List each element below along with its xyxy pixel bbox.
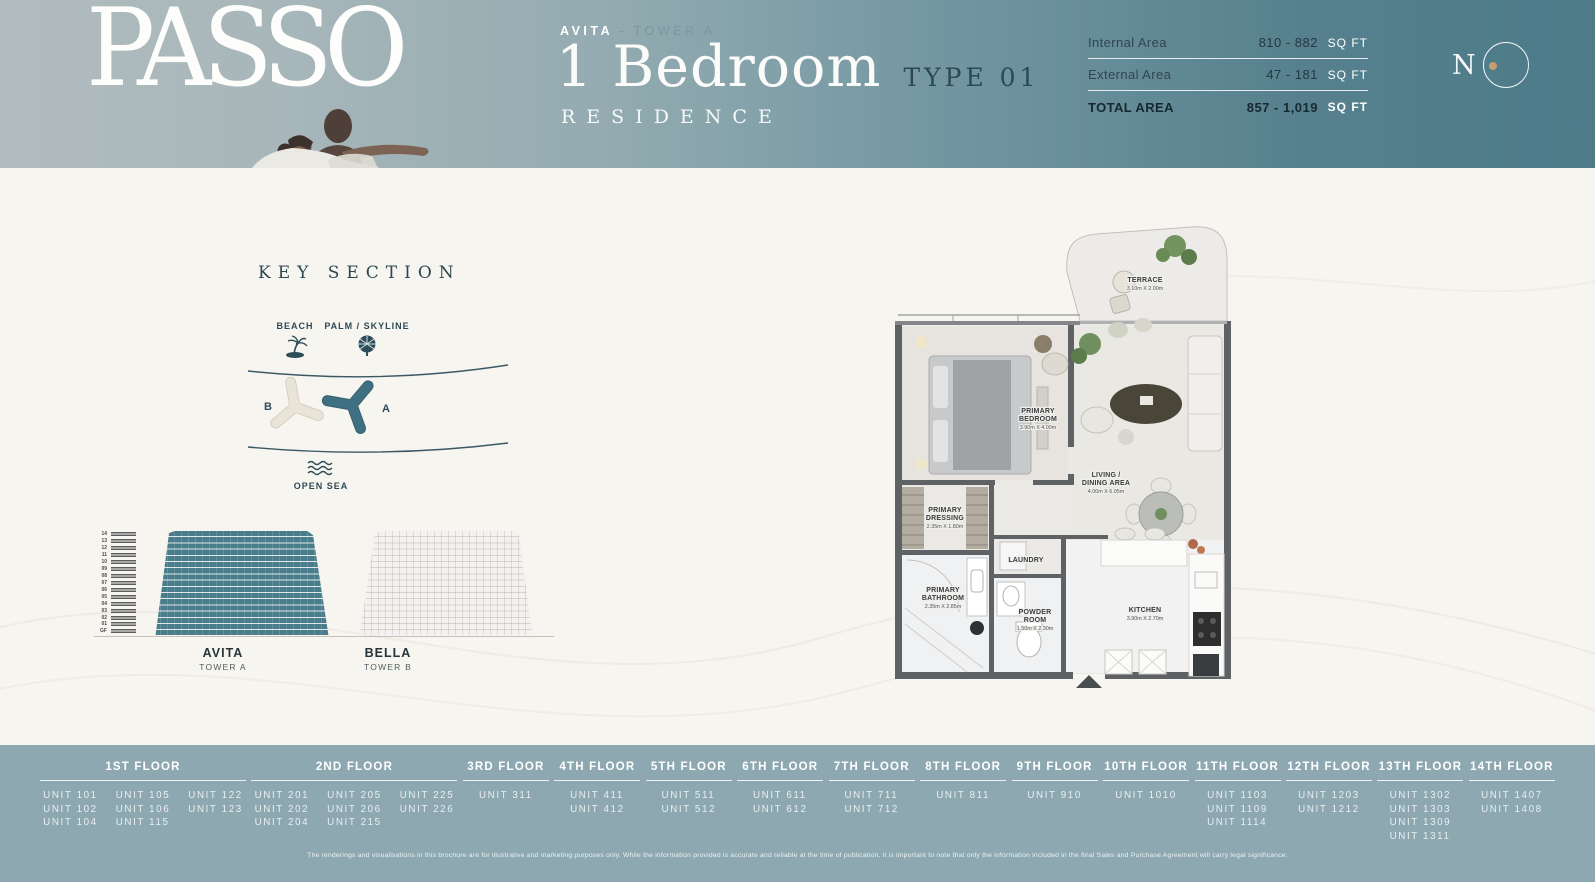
elevation-floor-number: 09	[96, 566, 107, 572]
sofa	[1188, 336, 1222, 451]
unit-label: UNIT 811	[936, 790, 990, 803]
area-row-unit: SQ FT	[1318, 36, 1368, 50]
elevation-floor-number: 02	[96, 615, 107, 621]
page-title: 1 Bedroom	[556, 34, 881, 100]
unit-label: UNIT 215	[327, 817, 382, 830]
palm-skyline-icon	[356, 335, 378, 357]
side-table	[1034, 335, 1052, 353]
floor-column: 5TH FLOOR UNIT 511UNIT 512	[646, 761, 732, 843]
room-dims: 3.90m X 2.70m	[1127, 616, 1164, 622]
floor-units: UNIT 711UNIT 712	[829, 790, 915, 816]
pouf	[1108, 322, 1128, 338]
header: PASSO AVITA- TOWER A 1 Bedroom TYPE 01 R…	[0, 0, 1595, 168]
floor-units: UNIT 611UNIT 612	[737, 790, 823, 816]
area-row-label: External Area	[1088, 67, 1226, 82]
area-table: Internal Area 810 - 882 SQ FT External A…	[1088, 27, 1368, 123]
wall	[895, 321, 902, 679]
floor-header: 2ND FLOOR	[251, 761, 457, 781]
floor-column: 10TH FLOOR UNIT 1010	[1103, 761, 1189, 843]
unit-label: UNIT 205	[327, 790, 382, 803]
floor-header: 9TH FLOOR	[1012, 761, 1098, 781]
unit-label: UNIT 910	[1027, 790, 1082, 803]
unit-label: UNIT 712	[844, 804, 899, 817]
ground-line	[94, 636, 554, 637]
unit-label: UNIT 1302	[1390, 790, 1452, 803]
floor-header: 11TH FLOOR	[1195, 761, 1281, 781]
floors-list: 1ST FLOOR UNIT 101UNIT 105UNIT 122UNIT 1…	[0, 745, 1595, 843]
floor-header: 7TH FLOOR	[829, 761, 915, 781]
unit-label: UNIT 115	[116, 817, 171, 830]
avita-caption: AVITA TOWER A	[153, 646, 293, 672]
room-label: PRIMARY	[928, 507, 962, 514]
elevation-floor-number: 13	[96, 538, 107, 544]
elevation-floor-dash	[111, 588, 136, 592]
elevation-floor-number: 05	[96, 594, 107, 600]
unit-label: UNIT 311	[479, 790, 533, 803]
key-diagram	[240, 355, 530, 495]
unit-label: UNIT 102	[43, 804, 98, 817]
type-label: TYPE 01	[903, 63, 1039, 92]
armchair	[1081, 407, 1113, 433]
floor-header: 6TH FLOOR	[737, 761, 823, 781]
floor-header: 1ST FLOOR	[40, 761, 246, 781]
key-section-title: KEY SECTION	[258, 263, 461, 283]
floor-header: 10TH FLOOR	[1103, 761, 1189, 781]
room-dims: 3.10m X 2.00m	[1127, 286, 1164, 292]
floor-header: 14TH FLOOR	[1469, 761, 1555, 781]
floor-units: UNIT 1203UNIT 1212	[1286, 790, 1372, 816]
floor-header: 8TH FLOOR	[920, 761, 1006, 781]
tower-elevation: 1413121110090807060504030201GF AVITA TOW…	[88, 515, 558, 685]
unit-label: UNIT 1303	[1390, 804, 1452, 817]
table-row-total: TOTAL AREA 857 - 1,019 SQ FT	[1088, 91, 1368, 123]
area-row-label: TOTAL AREA	[1088, 100, 1226, 115]
elevation-floor-dash	[111, 546, 136, 550]
unit-label: UNIT 104	[43, 817, 98, 830]
unit-label: UNIT 1203	[1298, 790, 1360, 803]
tower-a-letter: A	[382, 403, 390, 415]
room-dims: 1.50m X 2.30m	[1017, 626, 1054, 632]
room-label: LIVING /	[1092, 472, 1121, 479]
developer-logo-letter: N	[1452, 50, 1476, 81]
unit-label: UNIT 1109	[1207, 804, 1268, 817]
elevation-floor-dash	[111, 595, 136, 599]
avita-tower-elevation	[146, 531, 338, 635]
brand-logo: PASSO	[86, 0, 400, 111]
table-row: External Area 47 - 181 SQ FT	[1088, 59, 1368, 91]
area-row-label: Internal Area	[1088, 35, 1226, 50]
floor-column: 3RD FLOOR UNIT 311	[463, 761, 549, 843]
elevation-floor-dash	[111, 532, 136, 536]
elevation-floor-number: 01	[96, 621, 107, 627]
tower-a-footprint	[318, 364, 393, 438]
unit-label: UNIT 1407	[1481, 790, 1543, 803]
elevation-floor-number: 08	[96, 573, 107, 579]
elevation-floor-number: 10	[96, 559, 107, 565]
key-section: KEY SECTION BEACH PALM / SKYLINE	[240, 255, 530, 505]
disclaimer: The renderings and visualisations in thi…	[0, 852, 1595, 859]
floor-column: 12TH FLOOR UNIT 1203UNIT 1212	[1286, 761, 1372, 843]
bella-sub: TOWER B	[318, 662, 458, 672]
unit-label: UNIT 1309	[1390, 817, 1452, 830]
room-label: TERRACE	[1127, 277, 1162, 284]
elevation-floor-dash	[111, 581, 136, 585]
room-label: BATHROOM	[922, 595, 964, 602]
unit-label: UNIT 204	[255, 817, 310, 830]
room-label: PRIMARY	[1021, 408, 1055, 415]
floor-units: UNIT 101UNIT 105UNIT 122UNIT 102UNIT 106…	[40, 790, 246, 830]
unit-label: UNIT 105	[116, 790, 171, 803]
room-label: ROOM	[1024, 617, 1047, 624]
room-dims: 3.90m X 4.00m	[1020, 425, 1057, 431]
bedroom-chair	[1042, 353, 1068, 375]
elevation-floor-dash	[111, 553, 136, 557]
elevation-floor-number: 12	[96, 545, 107, 551]
unit-label: UNIT 226	[400, 804, 455, 817]
floor-plan: TERRACE 3.10m X 2.00m PRIMARY BEDROOM 3.…	[893, 224, 1233, 692]
unit-label: UNIT 122	[188, 790, 243, 803]
unit-label: UNIT 225	[400, 790, 455, 803]
floor-units: UNIT 1103UNIT 1109UNIT 1114	[1195, 790, 1281, 830]
floor-units: UNIT 311	[463, 790, 549, 803]
ceiling-light	[915, 336, 927, 348]
floor-units: UNIT 201UNIT 205UNIT 225UNIT 202UNIT 206…	[251, 790, 457, 830]
elevation-floor-number: 14	[96, 531, 107, 537]
brochure-page: PASSO AVITA- TOWER A 1 Bedroom TYPE 01 R…	[0, 0, 1595, 882]
room-label: DRESSING	[926, 515, 965, 522]
avita-name: AVITA	[153, 646, 293, 660]
elevation-floor-dash	[111, 602, 136, 606]
elevation-floor-dash	[111, 574, 136, 578]
unit-label: UNIT 101	[43, 790, 98, 803]
unit-label: UNIT 711	[844, 790, 899, 803]
area-row-value: 47 - 181	[1226, 67, 1318, 82]
floor-column: 6TH FLOOR UNIT 611UNIT 612	[737, 761, 823, 843]
open-sea-waves-icon	[306, 459, 336, 477]
main-content: KEY SECTION BEACH PALM / SKYLINE	[0, 168, 1595, 745]
unit-label: UNIT 1311	[1390, 831, 1452, 844]
elevation-floor-number: GF	[96, 628, 107, 634]
floor-units: UNIT 411UNIT 412	[554, 790, 640, 816]
floor-header: 12TH FLOOR	[1286, 761, 1372, 781]
floor-units: UNIT 1407UNIT 1408	[1469, 790, 1555, 816]
floor-column: 7TH FLOOR UNIT 711UNIT 712	[829, 761, 915, 843]
page-subtitle: RESIDENCE	[561, 106, 783, 128]
elevation-floor-dash	[111, 539, 136, 543]
footer: 1ST FLOOR UNIT 101UNIT 105UNIT 122UNIT 1…	[0, 745, 1595, 882]
unit-label: UNIT 1010	[1115, 790, 1177, 803]
area-row-value: 810 - 882	[1226, 35, 1318, 50]
elevation-floor-dash	[111, 629, 136, 633]
title-row: 1 Bedroom TYPE 01	[556, 34, 1039, 100]
floor-column: 14TH FLOOR UNIT 1407UNIT 1408	[1469, 761, 1555, 843]
floor-column: 1ST FLOOR UNIT 101UNIT 105UNIT 122UNIT 1…	[40, 761, 246, 843]
area-row-unit: SQ FT	[1318, 68, 1368, 82]
room-label: DINING AREA	[1082, 480, 1130, 487]
area-row-value: 857 - 1,019	[1226, 100, 1318, 115]
elevation-floor-number: 03	[96, 608, 107, 614]
elevation-floor-dash	[111, 622, 136, 626]
unit-label: UNIT 206	[327, 804, 382, 817]
bella-caption: BELLA TOWER B	[318, 646, 458, 672]
room-dims: 2.35m X 1.80m	[927, 524, 964, 530]
floor-units: UNIT 1302UNIT 1303UNIT 1309UNIT 1311	[1377, 790, 1463, 843]
developer-logo-circle-icon	[1483, 42, 1529, 88]
entrance-arrow-icon	[1076, 675, 1102, 688]
elevation-floor-number: 07	[96, 580, 107, 586]
room-label: LAUNDRY	[1008, 557, 1043, 564]
floor-header: 3RD FLOOR	[463, 761, 549, 781]
unit-label: UNIT 411	[570, 790, 625, 803]
elevation-floor-number: 06	[96, 587, 107, 593]
room-label: PRIMARY	[926, 587, 960, 594]
room-label: KITCHEN	[1129, 607, 1162, 614]
area-row-unit: SQ FT	[1318, 100, 1368, 114]
bed	[929, 356, 1031, 474]
floor-column: 8TH FLOOR UNIT 811	[920, 761, 1006, 843]
elevation-floor-dash	[111, 567, 136, 571]
elevation-floor-number: 04	[96, 601, 107, 607]
open-sea-label: OPEN SEA	[294, 481, 349, 491]
room-label: POWDER	[1019, 609, 1052, 616]
unit-label: UNIT 202	[255, 804, 310, 817]
floor-column: 9TH FLOOR UNIT 910	[1012, 761, 1098, 843]
bella-name: BELLA	[318, 646, 458, 660]
elevation-floor-dash	[111, 609, 136, 613]
unit-label: UNIT 1408	[1481, 804, 1543, 817]
floor-units: UNIT 811	[920, 790, 1006, 803]
laundry-machine	[1000, 542, 1026, 570]
tower-b-letter: B	[264, 401, 272, 413]
unit-label: UNIT 1212	[1298, 804, 1360, 817]
unit-label: UNIT 1103	[1207, 790, 1268, 803]
floor-header: 4TH FLOOR	[554, 761, 640, 781]
avita-sub: TOWER A	[153, 662, 293, 672]
floor-header: 5TH FLOOR	[646, 761, 732, 781]
unit-label: UNIT 1114	[1207, 817, 1268, 830]
floor-column: 11TH FLOOR UNIT 1103UNIT 1109UNIT 1114	[1195, 761, 1281, 843]
gold-dot-icon	[1489, 62, 1497, 70]
side-table-small	[1118, 429, 1134, 445]
unit-label: UNIT 612	[753, 804, 808, 817]
elevation-floor-labels: 1413121110090807060504030201GF	[96, 531, 142, 635]
developer-logo: N	[1452, 42, 1529, 88]
palm-skyline-label: PALM / SKYLINE	[324, 321, 409, 331]
unit-label: UNIT 123	[188, 804, 243, 817]
unit-label: UNIT 106	[116, 804, 171, 817]
floor-units: UNIT 511UNIT 512	[646, 790, 732, 816]
floor-column: 4TH FLOOR UNIT 411UNIT 412	[554, 761, 640, 843]
unit-label: UNIT 201	[255, 790, 310, 803]
unit-label: UNIT 512	[662, 804, 717, 817]
unit-label: UNIT 611	[753, 790, 808, 803]
floor-header: 13TH FLOOR	[1377, 761, 1463, 781]
elevation-floor-number: 11	[96, 552, 107, 558]
elevation-floor-dash	[111, 616, 136, 620]
terrace-area	[1067, 227, 1227, 321]
room-label: BEDROOM	[1019, 416, 1057, 423]
floor-units: UNIT 910	[1012, 790, 1098, 803]
unit-label: UNIT 511	[662, 790, 717, 803]
room-dims: 4.00m X 6.05m	[1088, 489, 1125, 495]
floor-units: UNIT 1010	[1103, 790, 1189, 803]
unit-label: UNIT 412	[570, 804, 625, 817]
beach-label: BEACH	[276, 321, 313, 331]
bella-tower-elevation	[350, 531, 542, 635]
elevation-floor-dash	[111, 560, 136, 564]
floor-column: 2ND FLOOR UNIT 201UNIT 205UNIT 225UNIT 2…	[251, 761, 457, 843]
floor-column: 13TH FLOOR UNIT 1302UNIT 1303UNIT 1309UN…	[1377, 761, 1463, 843]
room-dims: 2.35m X 2.85m	[925, 604, 962, 610]
table-row: Internal Area 810 - 882 SQ FT	[1088, 27, 1368, 59]
